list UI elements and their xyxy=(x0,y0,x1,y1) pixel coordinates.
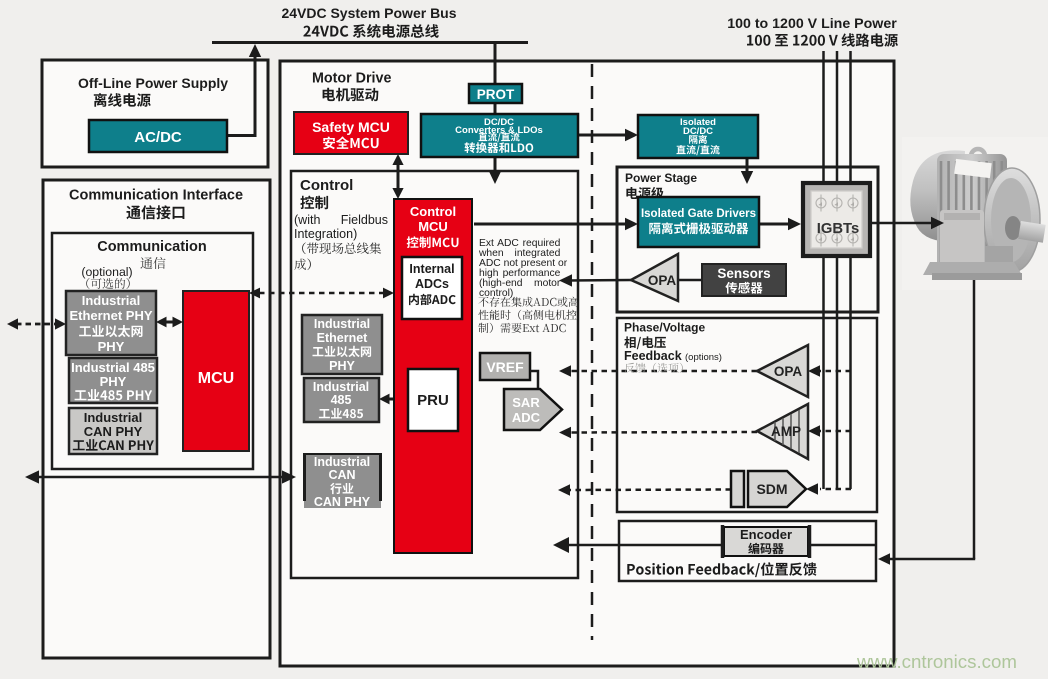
svg-text:PROT: PROT xyxy=(477,87,515,102)
svg-text:Converters & LDOs: Converters & LDOs xyxy=(455,125,543,136)
svg-text:CAN PHY: CAN PHY xyxy=(84,424,143,439)
svg-text:SDM: SDM xyxy=(756,481,787,497)
svg-text:PHY: PHY xyxy=(100,374,127,389)
svg-text:PHY: PHY xyxy=(98,339,125,354)
svg-text:control): control) xyxy=(479,288,513,299)
svg-text:(optional): (optional) xyxy=(81,265,132,279)
svg-text:PRU: PRU xyxy=(417,392,449,409)
svg-text:Industrial 485: Industrial 485 xyxy=(71,360,155,375)
svg-text:ADCs: ADCs xyxy=(415,277,449,291)
svg-text:Phase/Voltage: Phase/Voltage xyxy=(624,321,705,335)
svg-text:485: 485 xyxy=(331,393,352,407)
svg-text:24VDC System Power Bus: 24VDC System Power Bus xyxy=(281,5,456,21)
svg-text:Power Stage: Power Stage xyxy=(625,171,697,185)
svg-text:PHY: PHY xyxy=(329,359,355,373)
svg-text:Industrial: Industrial xyxy=(314,317,370,331)
svg-text:OPA: OPA xyxy=(648,273,677,288)
svg-text:Communication Interface: Communication Interface xyxy=(69,188,243,204)
svg-text:MCU: MCU xyxy=(418,219,448,234)
svg-text:Communication: Communication xyxy=(97,239,207,255)
svg-text:CAN: CAN xyxy=(328,468,355,482)
svg-text:VREF: VREF xyxy=(486,359,524,375)
svg-text:Feedback: Feedback xyxy=(624,349,682,363)
svg-text:OPA: OPA xyxy=(774,364,803,379)
svg-text:Off-Line Power Supply: Off-Line Power Supply xyxy=(78,75,228,91)
svg-text:Control: Control xyxy=(410,204,456,219)
svg-text:Industrial: Industrial xyxy=(313,380,369,394)
svg-text:SAR: SAR xyxy=(512,395,540,410)
svg-text:Encoder: Encoder xyxy=(740,527,792,542)
svg-text:MCU: MCU xyxy=(198,370,234,387)
svg-text:Industrial: Industrial xyxy=(314,455,370,469)
svg-text:Ethernet PHY: Ethernet PHY xyxy=(69,308,152,323)
svg-text:Sensors: Sensors xyxy=(717,266,770,281)
svg-text:DC/DC: DC/DC xyxy=(683,126,713,137)
svg-text:Integration): Integration) xyxy=(294,227,357,241)
svg-text:CAN PHY: CAN PHY xyxy=(314,495,371,509)
svg-text:Isolated Gate Drivers: Isolated Gate Drivers xyxy=(641,208,756,220)
svg-text:Ethernet: Ethernet xyxy=(317,331,369,345)
svg-text:IGBTs: IGBTs xyxy=(817,221,859,237)
svg-text:www.cntronics.com: www.cntronics.com xyxy=(856,651,1017,672)
svg-text:AC/DC: AC/DC xyxy=(134,129,182,146)
svg-text:Control: Control xyxy=(300,177,353,194)
svg-text:ADC: ADC xyxy=(512,410,541,425)
svg-text:100 to 1200 V Line Power: 100 to 1200 V Line Power xyxy=(727,16,897,32)
svg-text:Industrial: Industrial xyxy=(82,293,141,308)
svg-text:AMP: AMP xyxy=(771,424,801,439)
svg-text:Safety MCU: Safety MCU xyxy=(312,119,390,135)
svg-text:(with Fieldbus: (with Fieldbus xyxy=(294,213,388,227)
svg-text:Internal: Internal xyxy=(409,262,454,276)
svg-text:Industrial: Industrial xyxy=(84,410,143,425)
svg-text:Motor Drive: Motor Drive xyxy=(312,71,391,87)
svg-text:(options): (options) xyxy=(685,352,722,363)
